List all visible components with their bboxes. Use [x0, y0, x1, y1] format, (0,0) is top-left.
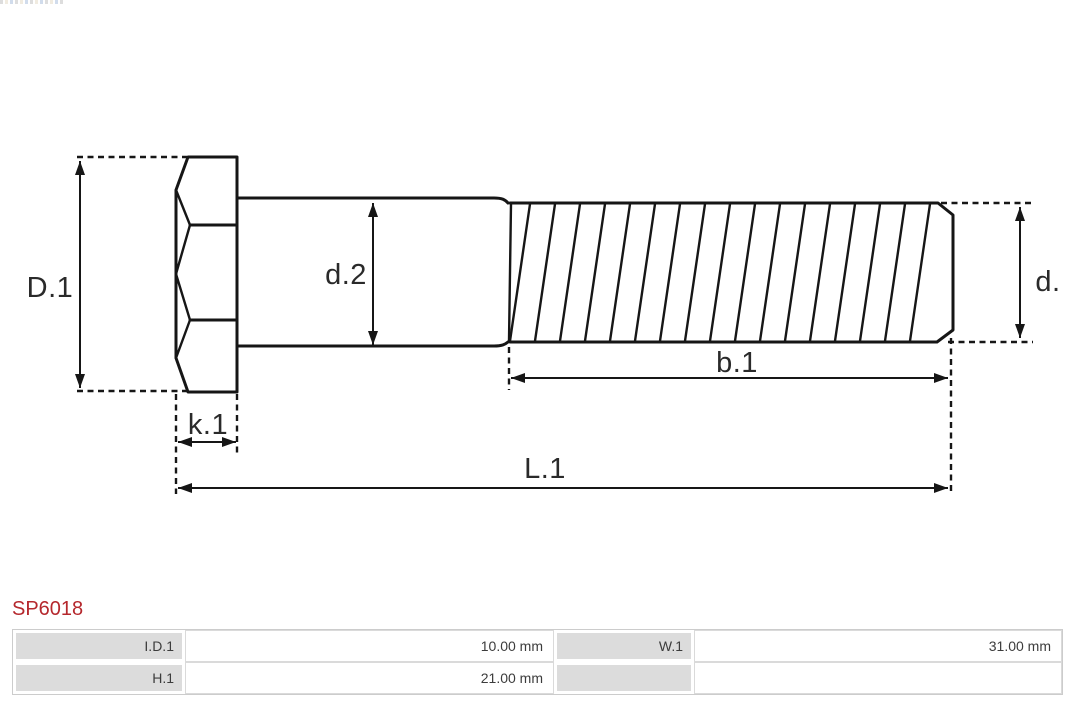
dim-value-empty [694, 662, 1062, 694]
dimension-label-L1: L.1 [524, 453, 566, 485]
dimension-d2: d.2 [325, 203, 373, 345]
dim-value-h1: 21.00 mm [185, 662, 554, 694]
table-row: I.D.1 10.00 mm W.1 31.00 mm [13, 630, 1062, 662]
dimension-label-D1: D.1 [27, 272, 74, 304]
dim-value-id1: 10.00 mm [185, 630, 554, 662]
dimensions-table-wrapper: I.D.1 10.00 mm W.1 31.00 mm H.1 21.00 mm [12, 629, 1063, 695]
thread-hatching [510, 204, 930, 341]
bolt-technical-drawing: D.1 d.2 d. b.1 k.1 [0, 0, 1080, 565]
product-technical-page: D.1 d.2 d. b.1 k.1 [0, 0, 1080, 701]
table-row: H.1 21.00 mm [13, 662, 1062, 694]
part-number: SP6018 [12, 598, 83, 621]
dim-value-w1: 31.00 mm [694, 630, 1062, 662]
dim-label-h1: H.1 [13, 662, 185, 694]
dimension-label-d: d. [1035, 266, 1060, 298]
dimension-d: d. [941, 203, 1061, 342]
bolt-head [176, 157, 237, 392]
dimensions-table: I.D.1 10.00 mm W.1 31.00 mm H.1 21.00 mm [13, 630, 1062, 694]
dimension-k1: k.1 [176, 394, 237, 494]
bolt-thread [509, 203, 953, 342]
dim-label-id1: I.D.1 [13, 630, 185, 662]
dimension-b1: b.1 [509, 338, 951, 493]
dimension-L1: L.1 [178, 453, 948, 488]
dim-label-empty [554, 662, 694, 694]
dim-label-w1: W.1 [554, 630, 694, 662]
dimension-label-k1: k.1 [188, 409, 228, 441]
dimension-label-b1: b.1 [716, 347, 758, 379]
dimension-label-d2: d.2 [325, 259, 367, 291]
dimension-D1: D.1 [27, 157, 187, 391]
